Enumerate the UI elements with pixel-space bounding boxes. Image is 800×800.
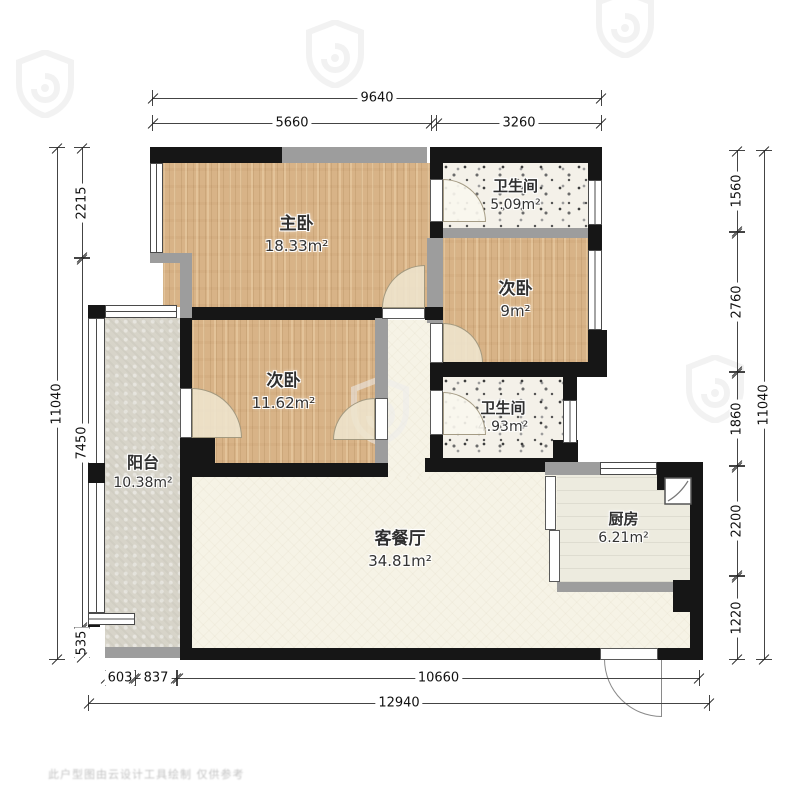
dim-label: 9640 xyxy=(357,91,396,106)
dim-label: 2200 xyxy=(730,501,745,540)
door-leaf xyxy=(180,388,192,438)
room-area: 6.21m² xyxy=(598,529,648,548)
dimension-bottom-seg2: 837 xyxy=(135,670,177,686)
window xyxy=(563,400,577,443)
wall-segment xyxy=(282,147,427,163)
wall-segment xyxy=(180,438,215,477)
dim-label: 12940 xyxy=(375,696,422,711)
dimension-left-seg2: 7450 xyxy=(74,258,90,628)
wall-segment xyxy=(430,163,443,179)
door-leaf xyxy=(430,390,443,435)
dimension-right-seg2: 2760 xyxy=(729,232,745,372)
door-leaf xyxy=(430,179,443,222)
wall-segment xyxy=(430,377,443,390)
wall-segment xyxy=(443,228,588,238)
wall-segment xyxy=(430,435,443,458)
watermark-text: 此户型图由云设计工具绘制 仅供参考 xyxy=(48,766,245,782)
room-name: 卫生间 xyxy=(490,176,540,196)
sliding-door-panel xyxy=(545,476,556,530)
dim-label: 2760 xyxy=(730,282,745,321)
watermark-shield-icon xyxy=(595,0,655,58)
balcony-label: 阳台 10.38m² xyxy=(98,452,188,492)
wall-segment xyxy=(563,377,577,400)
dimension-top-seg2: 3260 xyxy=(436,115,602,131)
wall-segment xyxy=(375,440,388,463)
wall-segment xyxy=(192,463,388,477)
dim-label: 837 xyxy=(141,671,172,686)
dimension-bottom-total: 12940 xyxy=(88,695,710,711)
wall-segment xyxy=(180,477,192,648)
wall-segment xyxy=(545,462,600,475)
door-leaf xyxy=(430,323,443,363)
room-name: 卫生间 xyxy=(478,398,528,418)
room-area: 34.81m² xyxy=(340,551,460,571)
dimension-bottom-seg3: 10660 xyxy=(177,670,700,686)
dim-label: 7450 xyxy=(75,423,90,462)
dimension-right-seg5: 1220 xyxy=(729,576,745,660)
dim-label: 535 xyxy=(75,628,90,659)
dim-label: 3260 xyxy=(499,116,538,131)
wall-segment xyxy=(425,307,443,320)
room-area: 9m² xyxy=(499,301,533,321)
wall-segment xyxy=(150,147,282,163)
room-second-bedroom-left: 次卧11.62m² xyxy=(192,320,375,463)
wall-segment xyxy=(88,305,105,318)
wall-segment xyxy=(105,647,180,658)
wall-segment xyxy=(557,582,673,592)
room-area: 5.09m² xyxy=(490,196,540,215)
room-name: 主卧 xyxy=(265,213,329,236)
window xyxy=(150,163,163,253)
wall-segment xyxy=(150,253,192,263)
wall-segment xyxy=(425,458,553,472)
wall-segment xyxy=(430,362,607,377)
watermark-shield-icon xyxy=(305,20,365,88)
sink-icon xyxy=(664,477,692,505)
window xyxy=(588,250,602,330)
dim-label: 1560 xyxy=(730,171,745,210)
wall-segment xyxy=(88,463,105,483)
dimension-right-seg4: 2200 xyxy=(729,466,745,576)
wall-segment xyxy=(192,307,382,320)
dimension-right-seg1: 1560 xyxy=(729,150,745,232)
room-area: 10.38m² xyxy=(98,474,188,493)
door-leaf xyxy=(382,308,425,319)
dimension-right-seg3: 1860 xyxy=(729,372,745,466)
wall-segment xyxy=(375,318,388,398)
dimension-left-seg3: 535 xyxy=(74,628,90,658)
window xyxy=(600,462,657,475)
dim-label: 11040 xyxy=(757,381,772,428)
window xyxy=(105,305,177,318)
room-name: 客餐厅 xyxy=(340,528,460,551)
room-area: 11.62m² xyxy=(252,393,316,413)
room-name: 次卧 xyxy=(499,278,533,301)
door-leaf xyxy=(375,398,388,440)
dim-label: 5660 xyxy=(272,116,311,131)
wall-segment xyxy=(180,263,192,318)
dimension-left-seg1: 2215 xyxy=(74,147,90,258)
living-label: 客餐厅 34.81m² xyxy=(340,528,460,571)
room-name: 厨房 xyxy=(598,509,648,529)
dim-label: 1220 xyxy=(730,598,745,637)
dim-label: 10660 xyxy=(415,671,462,686)
dimension-top-seg1: 5660 xyxy=(152,115,432,131)
room-area: 18.33m² xyxy=(265,236,329,256)
dimension-top-total: 9640 xyxy=(152,90,602,106)
floor-plan: 主卧18.33m² 卫生间5.09m² 次卧9m² 卫生间4.93m² 次卧11… xyxy=(0,0,800,800)
window xyxy=(588,180,602,225)
wall-segment xyxy=(430,147,602,163)
wall-segment xyxy=(430,222,443,238)
wall-segment xyxy=(180,318,192,388)
watermark-shield-icon xyxy=(15,50,75,118)
wall-segment xyxy=(180,648,600,660)
dimension-right-total: 11040 xyxy=(756,150,772,660)
dim-label: 2215 xyxy=(75,183,90,222)
window xyxy=(88,613,135,625)
room-name: 次卧 xyxy=(252,370,316,393)
wall-segment xyxy=(588,225,602,250)
dim-label: 1860 xyxy=(730,399,745,438)
wall-segment xyxy=(673,580,703,612)
wall-segment xyxy=(658,648,703,660)
room-name: 阳台 xyxy=(98,452,188,474)
wall-segment xyxy=(588,163,602,180)
sliding-door-panel xyxy=(549,530,560,582)
dim-label: 11040 xyxy=(50,380,65,427)
entrance-door-leaf xyxy=(600,648,658,660)
dimension-left-total: 11040 xyxy=(49,147,65,660)
